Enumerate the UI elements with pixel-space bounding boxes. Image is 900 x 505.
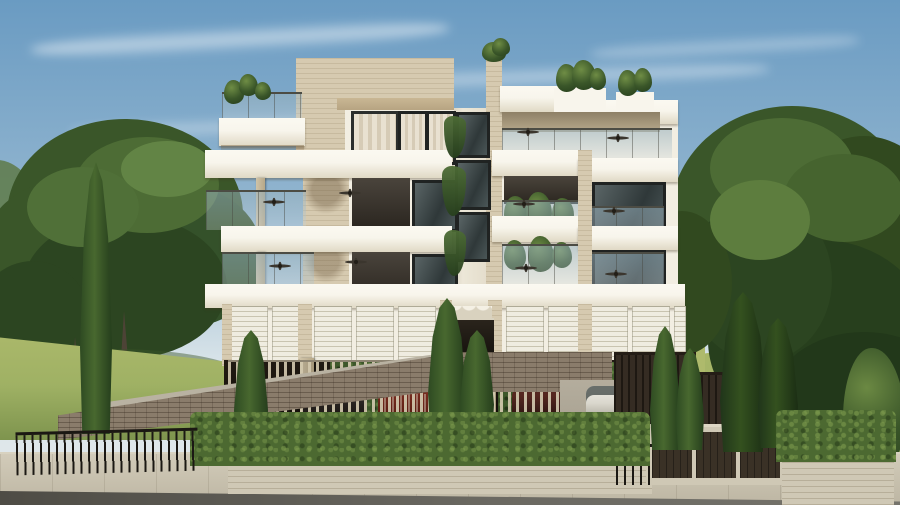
ceiling-fan-icon [512, 199, 536, 209]
facade-pilaster [222, 304, 232, 366]
ceiling-fan-icon [604, 269, 628, 279]
roof-plants [492, 38, 510, 56]
architectural-rendering [0, 0, 900, 505]
roof-planter-plants [634, 68, 652, 92]
louver-panel [314, 306, 352, 364]
ceiling-fan-icon [602, 206, 626, 216]
balcony-interior [352, 178, 410, 228]
balcony-slab [205, 150, 452, 178]
tower-soffit [337, 98, 454, 110]
street-railing [15, 428, 198, 476]
balcony-slab [492, 150, 582, 176]
ceiling-fan-icon [606, 133, 630, 143]
balcony-slab [578, 226, 678, 250]
balcony-slab [219, 118, 305, 146]
roof-planter-plants [590, 68, 606, 90]
ceiling-fan-icon [338, 188, 362, 198]
balcony-slab [221, 226, 452, 252]
roof-plants [255, 82, 271, 100]
ceiling-fan-icon [344, 257, 368, 267]
right-pilaster [578, 150, 592, 304]
facade-pilaster [298, 304, 312, 366]
planter-hedge [776, 410, 896, 462]
ceiling-fan-icon [268, 261, 292, 271]
front-hedge [190, 412, 650, 466]
louver-panel [356, 306, 394, 364]
ceiling-fan-icon [514, 263, 538, 273]
balcony-railing [206, 190, 306, 230]
roof-planter-box [554, 88, 606, 112]
ceiling-fan-icon [262, 197, 286, 207]
roof-planter-box [616, 92, 654, 114]
ceiling-fan-icon [516, 127, 540, 137]
balcony-slab [578, 158, 678, 182]
